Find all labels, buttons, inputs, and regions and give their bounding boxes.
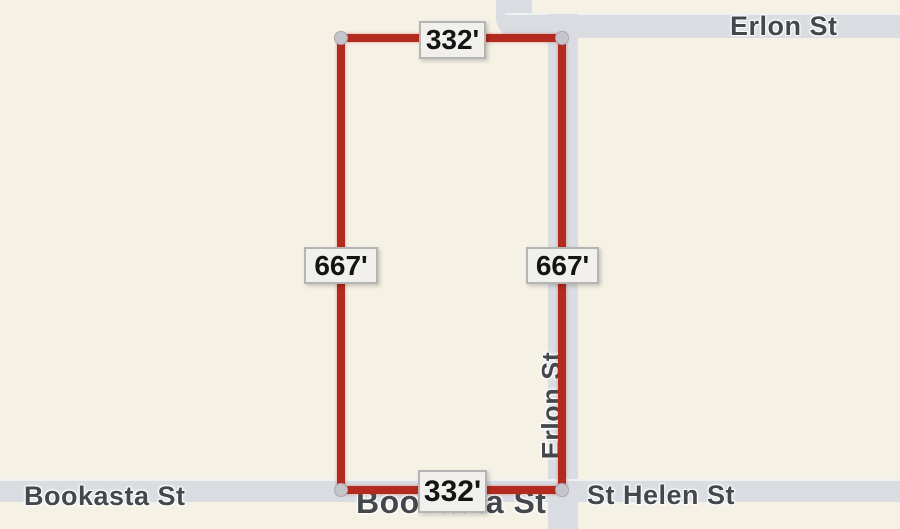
parcel-vertex-southeast[interactable] [555,483,569,497]
parcel-vertex-northeast[interactable] [555,31,569,45]
street-label-st-helen-st: St Helen St [587,480,735,511]
parcel-vertex-southwest[interactable] [334,483,348,497]
dimension-label-right: 667' [526,247,599,284]
dimension-label-left: 667' [304,247,378,284]
street-label-bookasta-st: Bookasta St [24,481,186,512]
dimension-label-bottom: 332' [418,470,487,513]
street-label-erlon-st-top: Erlon St [730,11,838,42]
dimension-label-top: 332' [419,21,486,59]
map-canvas[interactable]: Bookasta St Erlon St Erlon St Bookasta S… [0,0,900,529]
parcel-vertex-northwest[interactable] [334,31,348,45]
